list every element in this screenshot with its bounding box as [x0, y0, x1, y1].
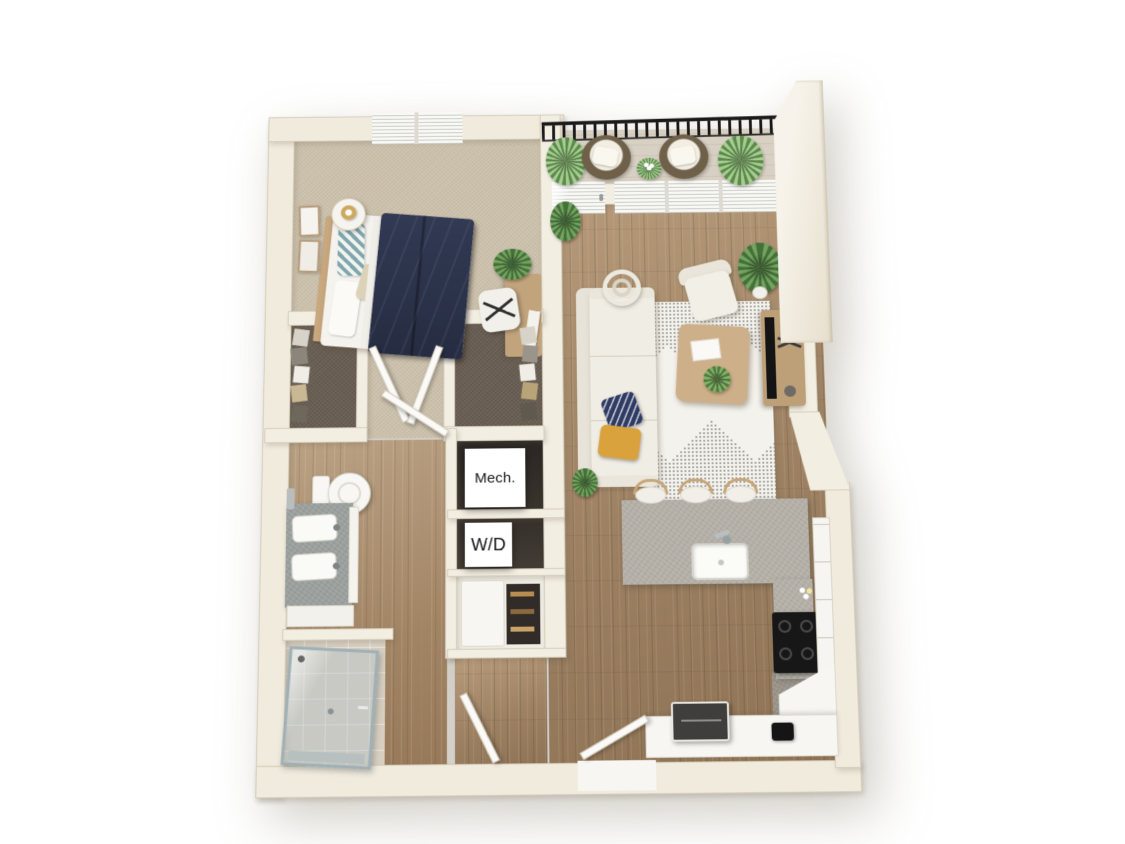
- fridge-handle: [681, 719, 721, 721]
- bar-stool: [719, 478, 763, 505]
- floor-lamp-inner-ring: [612, 278, 631, 296]
- tv-screen: [765, 317, 777, 399]
- bar-stool: [674, 478, 718, 505]
- chair-x-leg: [485, 298, 513, 322]
- shower-head: [298, 655, 305, 662]
- shelf-item: [511, 627, 535, 632]
- wd-closet-label-text: W/D: [471, 534, 506, 555]
- clothes-item: [290, 347, 308, 365]
- clothes-item: [293, 366, 310, 384]
- wd-closet-label: W/D: [465, 522, 512, 567]
- shower-drain: [328, 708, 334, 714]
- wall-bathroom-north-right: [443, 425, 544, 441]
- closet-left-clothes: [290, 329, 313, 426]
- bed-duvet: [368, 213, 475, 360]
- sink-drain: [718, 560, 724, 566]
- coffee-maker: [771, 723, 794, 741]
- clothes-item: [291, 405, 309, 423]
- bedroom-window: [372, 112, 463, 145]
- wall-wd-linen-divider: [447, 568, 565, 577]
- shower-enclosure: [280, 646, 379, 770]
- balcony-fern-left: [546, 137, 586, 185]
- balcony-door-handle: [599, 194, 603, 201]
- balcony-fern-right: [717, 135, 764, 185]
- clothes-item: [521, 382, 538, 400]
- shower-door-handle: [358, 706, 368, 709]
- counter-flowers: [797, 585, 815, 601]
- bed-pillow-teal: [337, 223, 365, 276]
- clothes-item: [290, 384, 307, 403]
- shelf-item: [510, 592, 534, 597]
- wall-art-frame: [298, 240, 321, 273]
- kitchen-sink: [691, 543, 749, 580]
- vanity-end-panel: [286, 605, 354, 627]
- linen-shelf-items: [506, 584, 540, 645]
- vanity-sink: [292, 513, 338, 543]
- floor-plan-render: Mech. W/D: [0, 0, 1125, 844]
- apartment-plan: Mech. W/D: [231, 96, 897, 804]
- armchair-seat: [683, 269, 740, 322]
- wall-shower-ledge: [282, 628, 393, 641]
- mech-closet-label: Mech.: [465, 448, 526, 507]
- closet-right-clothes: [519, 327, 541, 424]
- duvet-crease: [410, 216, 426, 356]
- burner: [800, 620, 813, 633]
- towel-bar: [286, 488, 294, 509]
- wall-bath-closet-column: [445, 428, 457, 659]
- clothes-item: [520, 402, 537, 420]
- clothes-item: [519, 363, 536, 381]
- plant-by-sofa: [572, 468, 598, 497]
- refrigerator: [671, 701, 730, 741]
- wall-bathroom-north-left: [264, 427, 367, 443]
- clothes-item: [292, 328, 310, 346]
- living-room-triple-window: [614, 180, 778, 214]
- shower-tray: [288, 750, 365, 764]
- decor-vase: [784, 385, 796, 396]
- entry-threshold: [578, 760, 657, 791]
- burner: [778, 620, 791, 633]
- plant-by-balcony-door: [550, 201, 581, 241]
- coffee-table: [675, 323, 750, 405]
- sofa-pillow-mustard: [597, 424, 642, 461]
- book: [690, 338, 721, 361]
- burner: [801, 647, 814, 660]
- vanity-cabinet-front: [348, 507, 359, 603]
- bar-stool: [629, 479, 673, 506]
- table-plant: [703, 365, 731, 393]
- kitchen-faucet-base: [722, 535, 731, 544]
- mech-closet-label-text: Mech.: [475, 469, 516, 486]
- sofa: [576, 287, 661, 487]
- vanity-sink: [291, 552, 337, 582]
- wall-art-frame: [299, 205, 321, 236]
- floor-lamp: [602, 269, 641, 306]
- balcony-flower-bloom: [642, 161, 655, 170]
- wall-mech-wd-divider: [447, 508, 565, 519]
- shelf-item: [510, 609, 534, 614]
- desk-chair: [477, 286, 521, 333]
- linen-shelf-unit: [461, 580, 505, 647]
- burner: [779, 647, 792, 660]
- tall-wall-top-right: [772, 80, 833, 343]
- wall-linen-bottom: [447, 648, 566, 659]
- clothes-item: [519, 326, 537, 345]
- plant-pot: [752, 286, 768, 299]
- clothes-item: [522, 345, 539, 363]
- bed: [312, 212, 474, 356]
